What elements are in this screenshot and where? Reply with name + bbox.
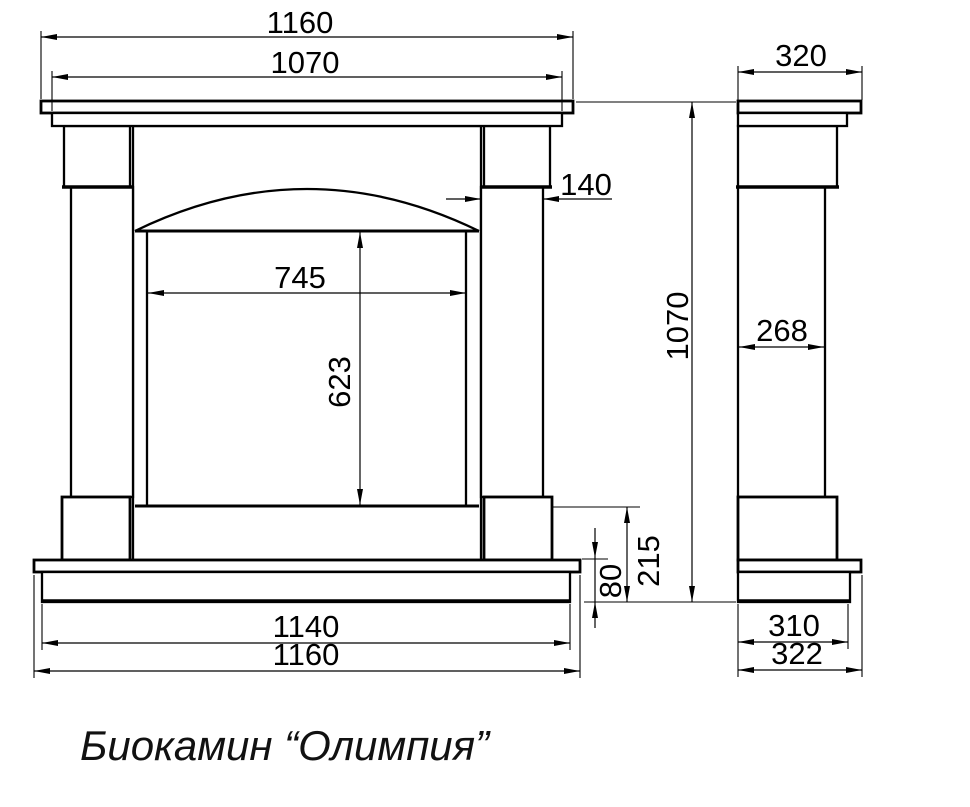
- dim-label-320: 320: [775, 38, 827, 73]
- bottom-shelf: [34, 560, 580, 572]
- side-plinth: [738, 572, 850, 602]
- side-mantel-top-board: [738, 101, 861, 113]
- dim-label-1070-height: 1070: [660, 292, 695, 361]
- right-column-capital: [484, 126, 550, 187]
- front-panel: [133, 126, 481, 560]
- arrowhead: [738, 639, 754, 645]
- arrowhead: [738, 69, 754, 75]
- dim-overall-height: 1070: [660, 102, 695, 602]
- technical-drawing-page: 1160 1070 140 745 623 215: [0, 0, 970, 807]
- plinth: [42, 572, 570, 602]
- dim-label-215: 215: [631, 535, 666, 587]
- dim-label-1160-top: 1160: [267, 5, 334, 40]
- arrowhead: [52, 74, 68, 80]
- arrowhead: [738, 667, 754, 673]
- arrowhead: [557, 34, 573, 40]
- arrowhead: [846, 69, 862, 75]
- mantel-top-board: [41, 101, 573, 113]
- dim-plinth-height: 80: [582, 528, 628, 628]
- side-column-base: [738, 497, 837, 560]
- arrowhead: [546, 74, 562, 80]
- mantel-sub-board: [52, 113, 562, 126]
- left-column-base: [62, 497, 130, 560]
- fireplace-dimension-drawing: 1160 1070 140 745 623 215: [0, 0, 970, 807]
- dim-label-623: 623: [322, 356, 357, 408]
- arrowhead: [564, 668, 580, 674]
- arrowhead: [846, 667, 862, 673]
- right-column-base: [484, 497, 552, 560]
- arrowhead: [42, 640, 58, 646]
- drawing-title: Биокамин “Олимпия”: [80, 722, 491, 769]
- arrowhead: [832, 639, 848, 645]
- arrowhead: [689, 586, 695, 602]
- left-column-capital: [64, 126, 130, 187]
- dim-label-745: 745: [274, 260, 326, 295]
- arrowhead: [592, 542, 598, 558]
- side-view: [736, 101, 861, 602]
- side-capital: [738, 126, 837, 187]
- dim-label-140: 140: [560, 167, 612, 202]
- arrowhead: [41, 34, 57, 40]
- arrowhead: [554, 640, 570, 646]
- dim-label-268: 268: [756, 313, 808, 348]
- arrowhead: [624, 507, 630, 523]
- arrowhead: [592, 602, 598, 618]
- left-column-shaft: [71, 187, 133, 497]
- side-bottom-shelf: [738, 560, 861, 572]
- dim-mantel-depth: 320: [738, 38, 862, 100]
- arrowhead: [543, 196, 559, 202]
- arrowhead: [34, 668, 50, 674]
- front-view: [34, 101, 580, 602]
- dim-label-1160-bottom: 1160: [273, 637, 340, 672]
- arrowhead: [689, 102, 695, 118]
- side-mantel-sub-board: [738, 113, 847, 126]
- right-column-shaft: [481, 187, 543, 497]
- dim-label-80: 80: [593, 564, 628, 598]
- dim-label-322: 322: [771, 636, 823, 671]
- dim-label-1070: 1070: [271, 45, 340, 80]
